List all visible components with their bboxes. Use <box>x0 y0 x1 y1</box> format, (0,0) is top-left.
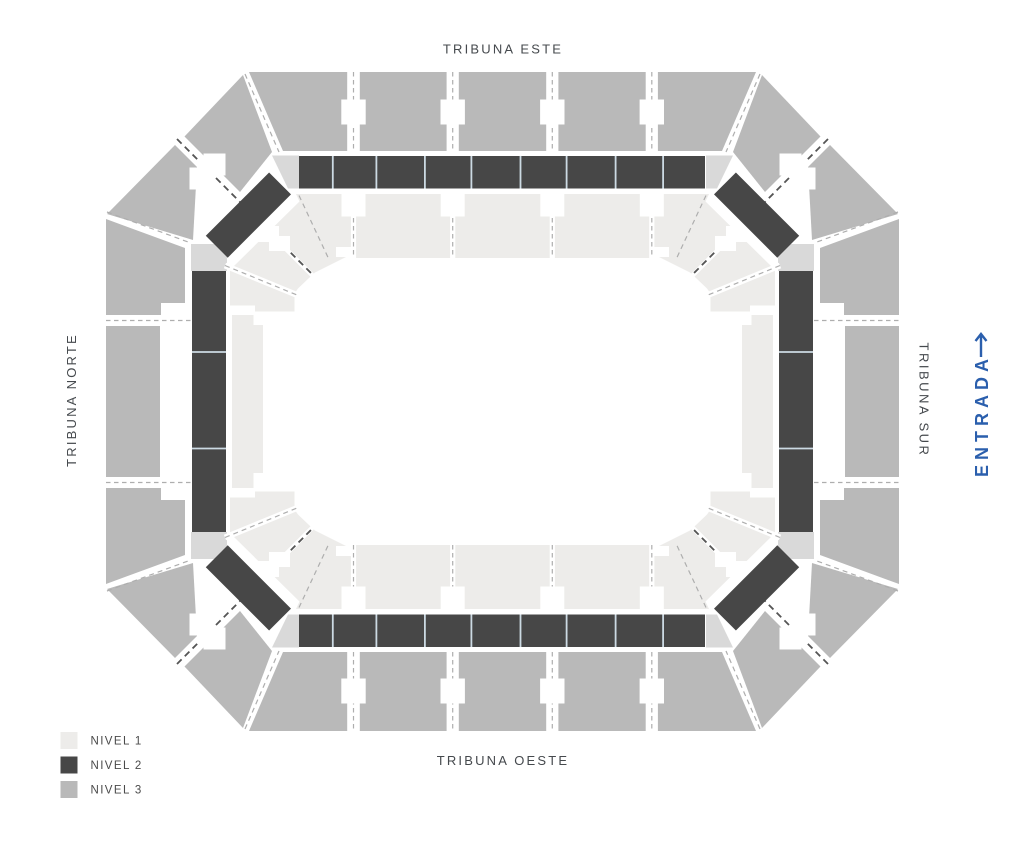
svg-text:TRIBUNA ESTE: TRIBUNA ESTE <box>443 42 563 57</box>
svg-text:ENTRADA: ENTRADA <box>972 354 992 477</box>
svg-text:TRIBUNA NORTE: TRIBUNA NORTE <box>64 333 79 467</box>
svg-text:NIVEL 1: NIVEL 1 <box>91 736 143 748</box>
svg-text:TRIBUNA OESTE: TRIBUNA OESTE <box>437 753 570 768</box>
svg-text:NIVEL 2: NIVEL 2 <box>91 760 143 772</box>
svg-text:NIVEL 3: NIVEL 3 <box>91 785 143 797</box>
svg-text:TRIBUNA SUR: TRIBUNA SUR <box>917 343 932 458</box>
